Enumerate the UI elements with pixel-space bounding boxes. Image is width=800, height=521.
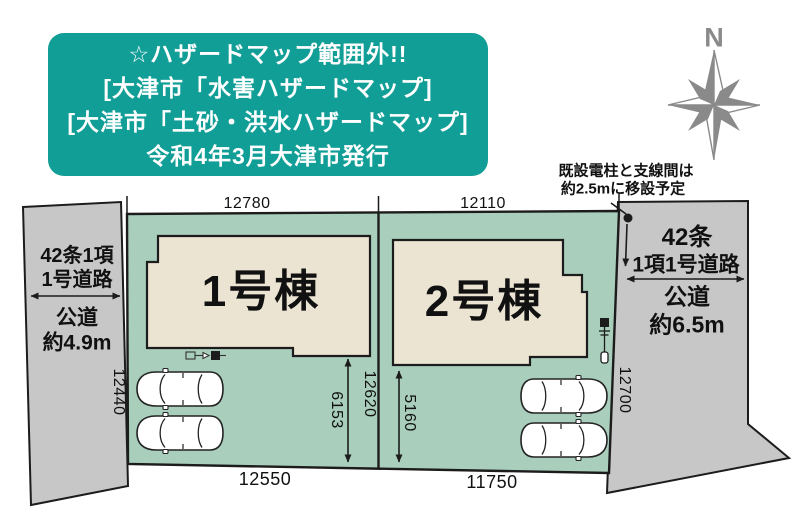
car-icon — [137, 369, 223, 410]
hazard-notice-line: ☆ハザードマップ範囲外!! — [129, 37, 408, 71]
left-road-type: 公道 — [56, 308, 98, 329]
building-1-label: 1号棟 — [202, 270, 320, 314]
dim-plot1-yard-depth: 6153 — [328, 391, 344, 429]
car-icon — [137, 413, 223, 454]
hazard-notice-line: [大津市「土砂・洪水ハザードマップ] — [67, 105, 468, 139]
compass-rose-icon — [668, 50, 760, 160]
hazard-notice-line: [大津市「水害ハザードマップ] — [103, 71, 432, 105]
site-plan-canvas: ☆ハザードマップ範囲外!! [大津市「水害ハザードマップ] [大津市「土砂・洪水… — [0, 0, 800, 521]
car-icon — [521, 376, 607, 417]
left-road-law-line2: 1号道路 — [41, 270, 112, 290]
hazard-notice-line: 令和4年3月大津市発行 — [146, 139, 390, 173]
utility-pole-dot — [624, 214, 633, 223]
compass-north-label: N — [704, 25, 724, 52]
dim-right-frontage: 12700 — [616, 367, 632, 414]
left-road-width: 約4.9m — [43, 333, 112, 354]
left-road-law-line1: 42条1項 — [40, 246, 113, 266]
right-road-type: 公道 — [664, 286, 710, 309]
dim-boundary-depth: 12620 — [361, 371, 377, 418]
right-road-width: 約6.5m — [649, 314, 724, 337]
pole-note-line2: 約2.5mに移設予定 — [561, 182, 685, 197]
right-road-law-line1: 42条 — [662, 226, 713, 250]
dim-plot1-top: 12780 — [224, 196, 271, 212]
right-road-law-line2: 1項1号道路 — [632, 255, 739, 276]
hazard-map-notice: ☆ハザードマップ範囲外!! [大津市「水害ハザードマップ] [大津市「土砂・洪水… — [48, 33, 488, 176]
dim-left-frontage: 12440 — [110, 369, 126, 416]
pole-note-line1: 既設電柱と支線間は — [558, 164, 693, 179]
dim-plot1-bottom: 12550 — [239, 470, 292, 488]
car-icon — [521, 420, 607, 461]
dim-plot2-yard-depth: 5160 — [401, 394, 417, 432]
dim-plot2-bottom: 11750 — [466, 473, 517, 491]
building-2-label: 2号棟 — [425, 280, 543, 324]
dim-plot2-top: 12110 — [460, 196, 506, 212]
